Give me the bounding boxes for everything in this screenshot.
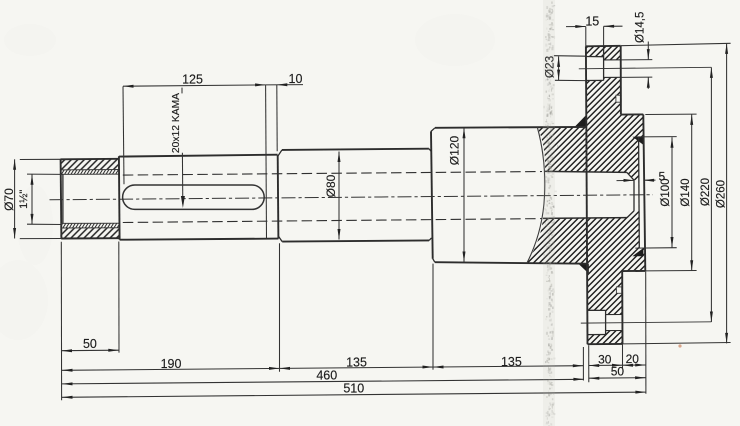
svg-text:Ø100: Ø100 <box>660 178 672 206</box>
svg-text:20: 20 <box>626 352 640 366</box>
svg-text:20x12 KAMA: 20x12 KAMA <box>171 93 182 153</box>
svg-text:Ø70: Ø70 <box>2 188 16 211</box>
svg-text:460: 460 <box>316 369 337 383</box>
svg-text:Ø120: Ø120 <box>448 135 462 165</box>
svg-text:135: 135 <box>501 355 522 369</box>
svg-text:Ø220: Ø220 <box>700 178 712 206</box>
svg-text:Ø260: Ø260 <box>715 180 727 208</box>
svg-text:Ø140: Ø140 <box>680 178 692 206</box>
svg-text:135: 135 <box>346 356 367 370</box>
svg-text:50: 50 <box>83 337 97 351</box>
svg-text:1½": 1½" <box>18 190 30 209</box>
svg-text:510: 510 <box>343 381 364 395</box>
svg-text:50: 50 <box>611 364 625 378</box>
svg-text:15: 15 <box>585 14 599 28</box>
svg-text:10: 10 <box>289 72 303 86</box>
svg-text:Ø80: Ø80 <box>324 174 338 197</box>
svg-text:Ø14,5: Ø14,5 <box>634 12 646 43</box>
svg-text:190: 190 <box>161 357 182 371</box>
svg-text:125: 125 <box>182 73 203 87</box>
